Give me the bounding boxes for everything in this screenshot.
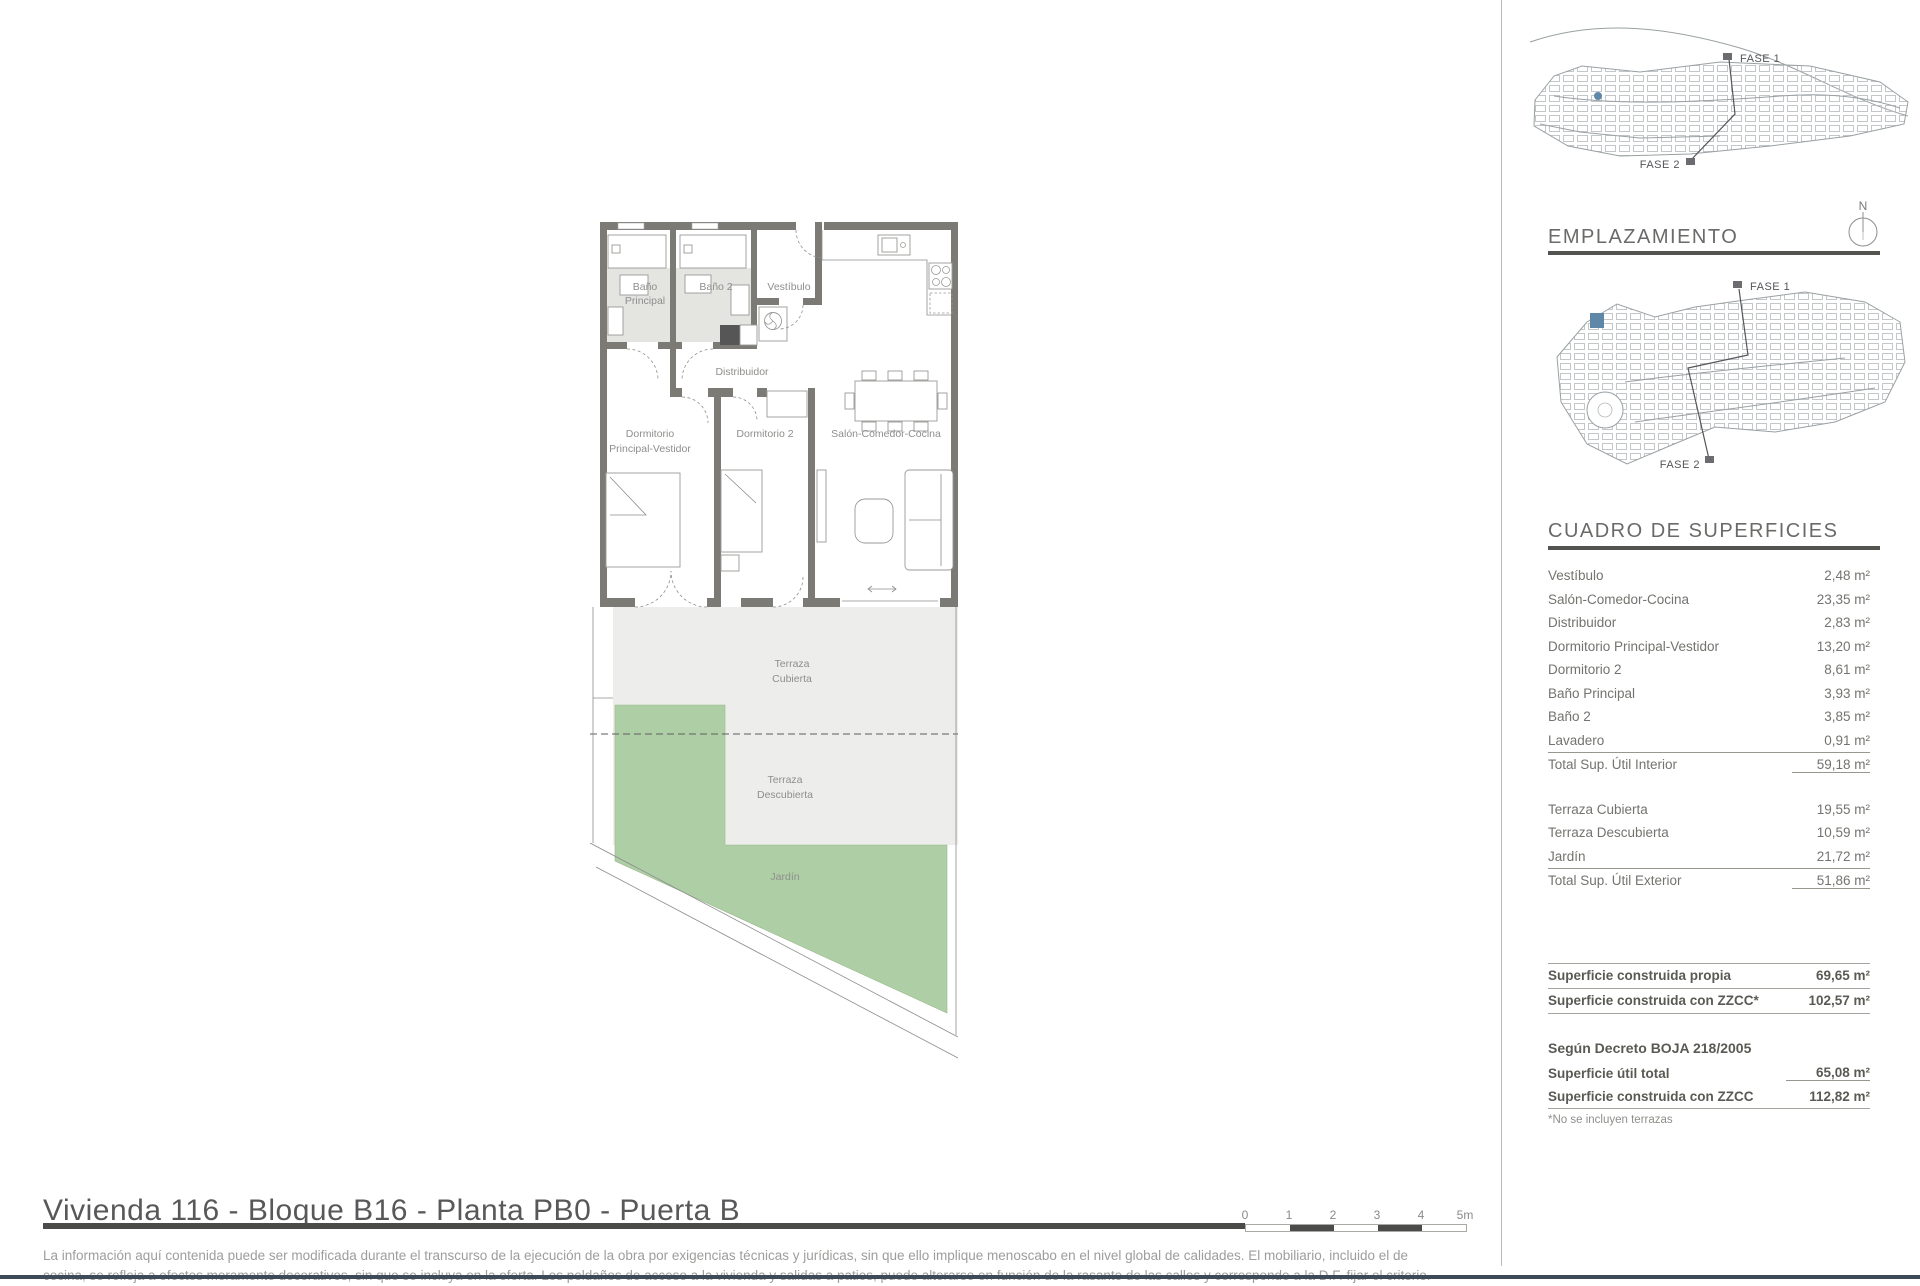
construida-block: Superficie construida propia 69,65 m² Su… <box>1548 963 1870 1014</box>
room-label-terraza-descubierta: Terraza <box>767 774 802 786</box>
floor-plan: Baño Principal Baño 2 Vestíbulo Distribu… <box>590 215 970 1060</box>
room-label-dormitorio2: Dormitorio 2 <box>736 428 793 440</box>
room-label-salon: Salón-Comedor-Cocina <box>831 428 941 440</box>
table-row: Dormitorio 2 8,61 m² <box>1548 658 1870 682</box>
room-label-dormitorio-ppal: Dormitorio <box>626 428 675 440</box>
table-row: Baño 2 3,85 m² <box>1548 705 1870 729</box>
sidebar-divider <box>1501 0 1502 1266</box>
table-row: Salón-Comedor-Cocina 23,35 m² <box>1548 588 1870 612</box>
footnote: *No se incluyen terrazas <box>1548 1114 1870 1126</box>
table-row: Baño Principal 3,93 m² <box>1548 682 1870 706</box>
kitchen-counter <box>822 230 952 315</box>
scale-tick: 4 <box>1418 1208 1425 1222</box>
bottom-accent-line <box>0 1275 1920 1279</box>
table-row-bold: Superficie construida propia 69,65 m² <box>1548 964 1870 989</box>
table-row: Vestíbulo 2,48 m² <box>1548 564 1870 588</box>
room-label-bano2: Baño 2 <box>699 281 732 293</box>
room-label-terraza-cubierta: Terraza <box>774 658 809 670</box>
table-row: Terraza Descubierta 10,59 m² <box>1548 821 1870 845</box>
table-row: Dormitorio Principal-Vestidor 13,20 m² <box>1548 635 1870 659</box>
room-label-jardin: Jardín <box>770 871 799 883</box>
room-label-terraza-descubierta-2: Descubierta <box>757 789 813 801</box>
superficies-underline <box>1548 546 1880 550</box>
fase2-marker <box>1686 158 1695 165</box>
room-label-vestibulo: Vestíbulo <box>767 281 810 293</box>
room-label-bano-principal: Baño <box>633 281 658 293</box>
fase1-marker <box>1733 281 1742 288</box>
table-row: Jardín 21,72 m² <box>1548 845 1870 869</box>
disclaimer: La información aquí contenida puede ser … <box>43 1246 1493 1286</box>
compass: N <box>1838 196 1888 254</box>
disclaimer-line1: La información aquí contenida puede ser … <box>43 1246 1493 1266</box>
table-row: Terraza Cubierta 19,55 m² <box>1548 798 1870 822</box>
fase1-marker <box>1723 53 1732 60</box>
emplazamiento-title: EMPLAZAMIENTO <box>1548 226 1738 249</box>
decreto-heading: Según Decreto BOJA 218/2005 <box>1548 1040 1870 1062</box>
highlighted-block <box>1590 313 1604 328</box>
title-underline-bar <box>43 1223 1245 1229</box>
room-label-bano-principal-2: Principal <box>625 295 665 307</box>
fase2-marker <box>1705 456 1714 463</box>
table-row: Lavadero 0,91 m² <box>1548 729 1870 753</box>
table-row: Distribuidor 2,83 m² <box>1548 611 1870 635</box>
room-label-dormitorio-ppal-2: Principal-Vestidor <box>609 443 691 455</box>
emplazamiento-underline <box>1548 251 1880 255</box>
table-row-total-exterior: Total Sup. Útil Exterior 51,86 m² <box>1548 868 1870 893</box>
furniture <box>606 371 953 571</box>
scale-tick: 2 <box>1330 1208 1337 1222</box>
location-marker-dot <box>1594 92 1602 100</box>
fase1-label: FASE 1 <box>1740 53 1780 65</box>
scale-tick: 1 <box>1286 1208 1293 1222</box>
scale-bar: 0 1 2 3 4 5m <box>1245 1208 1467 1232</box>
surface-table: Vestíbulo 2,48 m² Salón-Comedor-Cocina 2… <box>1548 564 1870 1126</box>
table-row-decreto: Superficie útil total 65,08 m² <box>1548 1062 1870 1085</box>
scale-tick: 0 <box>1242 1208 1249 1222</box>
site-plan-aerial: FASE 1 FASE 2 <box>1520 4 1916 174</box>
table-row-decreto: Superficie construida con ZZCC 112,82 m² <box>1548 1085 1870 1109</box>
fase1-label: FASE 1 <box>1750 281 1790 293</box>
shaft-2 <box>740 325 757 345</box>
fase2-label: FASE 2 <box>1660 459 1700 471</box>
table-row-total-interior: Total Sup. Útil Interior 59,18 m² <box>1548 752 1870 777</box>
scale-bar-segments <box>1245 1224 1467 1232</box>
fase2-label: FASE 2 <box>1640 159 1680 171</box>
lavadero-washing-machine-icon <box>759 307 787 341</box>
shaft <box>720 325 740 345</box>
superficies-title: CUADRO DE SUPERFICIES <box>1548 520 1838 543</box>
room-label-terraza-cubierta-2: Cubierta <box>772 673 812 685</box>
compass-n-label: N <box>1859 199 1868 213</box>
scale-tick: 5m <box>1457 1208 1474 1222</box>
table-row-bold: Superficie construida con ZZCC* 102,57 m… <box>1548 989 1870 1014</box>
site-plan-emplazamiento: FASE 1 FASE 2 <box>1545 262 1915 490</box>
room-label-distribuidor: Distribuidor <box>715 366 769 378</box>
scale-tick: 3 <box>1374 1208 1381 1222</box>
